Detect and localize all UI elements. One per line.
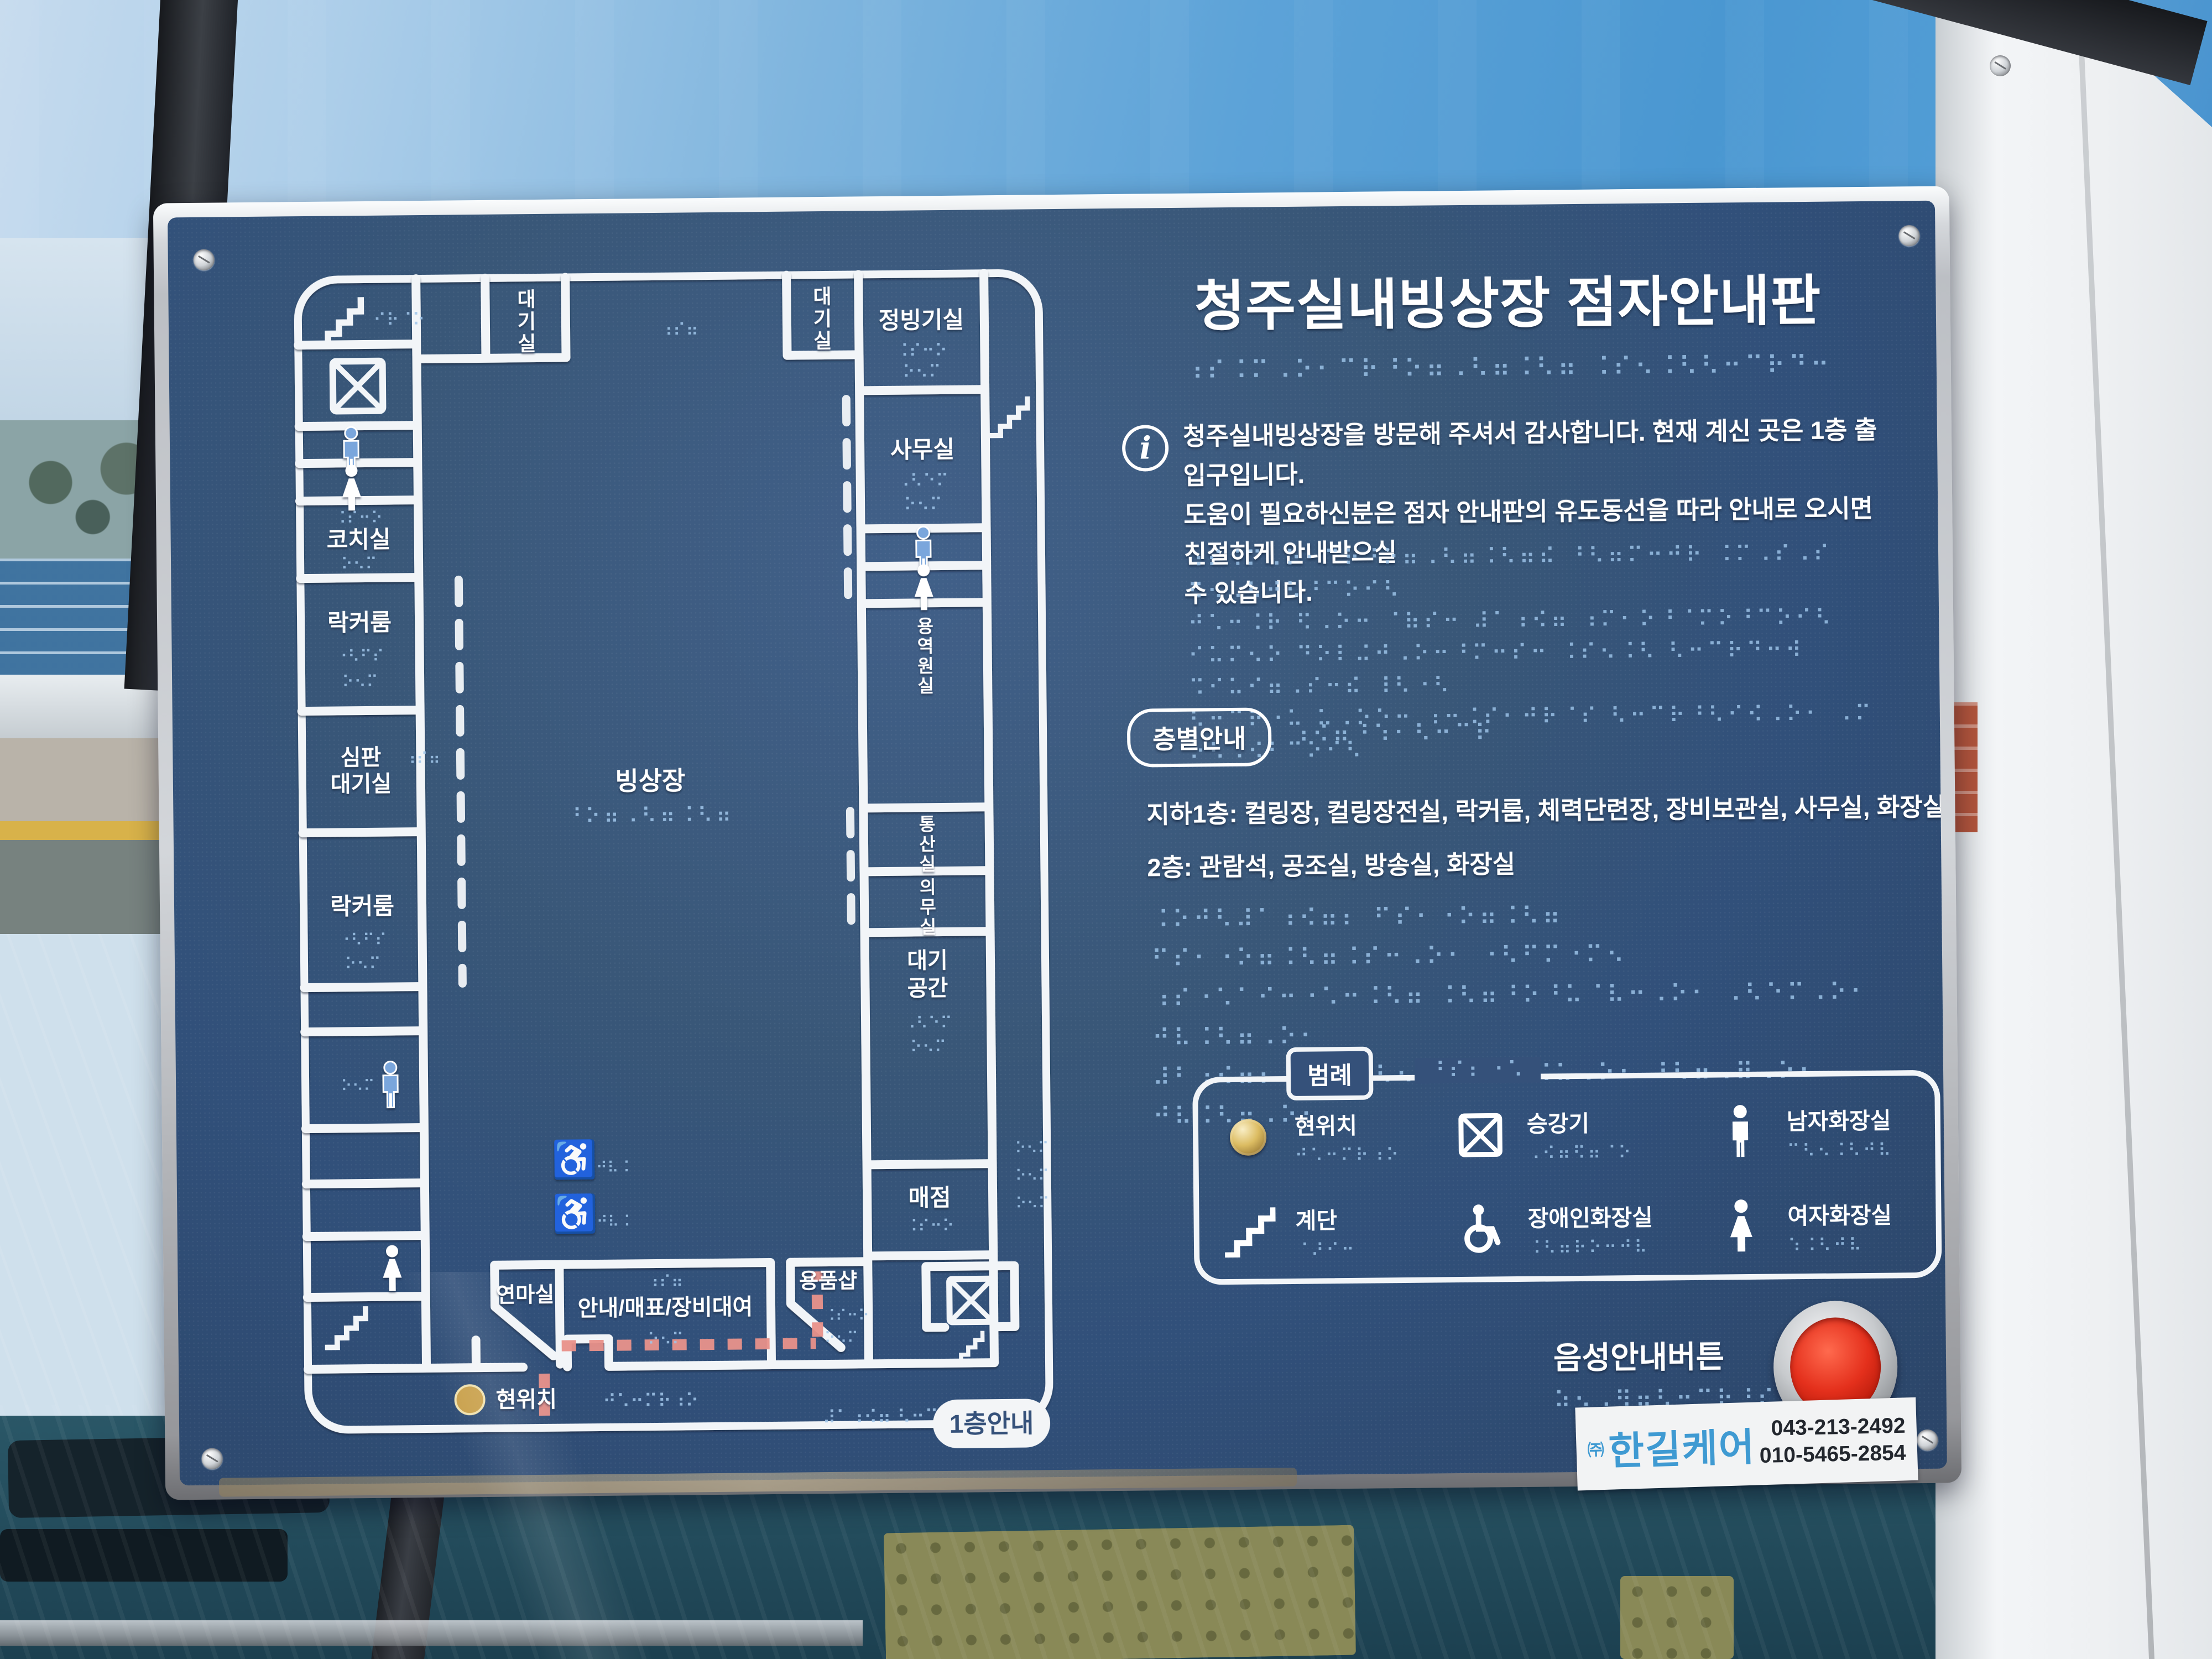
board-panel: ♿ ♿ 대기실 대기실 정빙기실 사무실 코치실 락커룸 심판 [168, 201, 1947, 1486]
svg-text:⠐⠣⠋⠎: ⠐⠣⠋⠎ [338, 931, 387, 951]
room-label: 의무실 [917, 878, 937, 937]
svg-text:⠊⠗⠈⠕: ⠊⠗⠈⠕ [373, 309, 425, 331]
area-label: 공간 [907, 976, 948, 1001]
female-restroom-icon [1710, 1198, 1772, 1256]
door-openings [457, 399, 852, 984]
stairs-icon [1218, 1206, 1280, 1258]
legend-item-stairs: 계단 ⠈⠜⠊⠒ [1218, 1201, 1451, 1261]
female-restroom-icon [383, 1245, 402, 1291]
svg-text:⠚⠧⠨: ⠚⠧⠨ [596, 1212, 630, 1231]
board-screw [1898, 225, 1919, 246]
svg-text:⠚⠡⠒⠍⠗⠰⠕: ⠚⠡⠒⠍⠗⠰⠕ [602, 1390, 699, 1413]
sticker-phone2: 010-5465-2854 [1760, 1440, 1907, 1470]
room-label: 연마실 [496, 1284, 554, 1307]
area-label: 대기 [907, 948, 948, 973]
info-desk-front [598, 1355, 769, 1357]
accessible-restroom-icon: ♿ [552, 1193, 598, 1235]
board-screw [194, 249, 215, 270]
svg-text:⠕⠢⠍: ⠕⠢⠍ [341, 555, 377, 575]
board-title: 청주실내빙상장 점자안내판 [1142, 255, 1873, 342]
room-label: 코치실 [326, 526, 390, 553]
voice-button-label: 음성안내버튼 [1553, 1332, 1725, 1378]
stairs-icon [953, 1333, 983, 1362]
outdoor-dark-road [0, 840, 169, 934]
elevator-icon [1449, 1111, 1512, 1159]
board-screw [201, 1448, 222, 1469]
frame-screw [1990, 55, 2011, 76]
svg-text:⠨⠎⠒⠕: ⠨⠎⠒⠕ [895, 340, 947, 362]
room-label: 대기실 [514, 289, 537, 356]
sticker-company: 한길케어 [1608, 1416, 1756, 1476]
svg-text:⠠⠣⠑⠍: ⠠⠣⠑⠍ [897, 470, 949, 492]
title-braille: ⠰⠎⠨⠍⠠⠕⠂⠉⠗⠘⠕⠶⠠⠣⠶⠨⠣⠶ ⠨⠎⠢⠨⠣⠣⠒⠉⠗⠙⠒ [1144, 349, 1874, 387]
outdoor-yellow-line [0, 821, 169, 840]
svg-text:⠨⠎⠒⠕: ⠨⠎⠒⠕ [334, 509, 383, 529]
room-label: 사무실 [890, 436, 954, 463]
legend-item-male-restroom: 남자화장실 ⠉⠣⠢⠨⠣⠚⠧ [1709, 1101, 1942, 1162]
stairs-icon [991, 399, 1027, 435]
current-location-button [1217, 1119, 1280, 1156]
male-restroom-icon [383, 1061, 398, 1107]
svg-text:⠕⠢⠍: ⠕⠢⠍ [1015, 1166, 1050, 1185]
sticker-phone1: 043-213-2492 [1759, 1413, 1906, 1443]
outdoor-road [0, 738, 169, 821]
room-label: 통산실 [916, 815, 936, 874]
svg-text:⠕⠢⠍: ⠕⠢⠍ [647, 1330, 684, 1350]
room-label: 대기실 [331, 772, 392, 797]
male-restroom-icon [1709, 1103, 1772, 1161]
floor-pill-label: 1층안내 [950, 1408, 1034, 1438]
floor-plan-map: ♿ ♿ 대기실 대기실 정빙기실 사무실 코치실 락커룸 심판 [233, 262, 1074, 1458]
svg-text:⠕⠢⠍: ⠕⠢⠍ [345, 954, 381, 974]
room-label: 매점 [908, 1185, 951, 1211]
svg-text:⠕⠢⠍: ⠕⠢⠍ [1015, 1139, 1049, 1157]
room-label: 대기실 [810, 286, 833, 353]
braille-guide-board: ♿ ♿ 대기실 대기실 정빙기실 사무실 코치실 락커룸 심판 [153, 186, 1961, 1500]
svg-text:⠰⠎⠶: ⠰⠎⠶ [404, 749, 440, 769]
legend-item-accessible-restroom: 장애인화장실 ⠨⠣⠶⠗⠕⠒⠚⠧ [1450, 1198, 1710, 1259]
room-label: 심판 [340, 745, 381, 770]
svg-text:⠕⠢⠍: ⠕⠢⠍ [904, 494, 943, 515]
stairs-icon [327, 1309, 366, 1348]
svg-text:⠕⠢⠍: ⠕⠢⠍ [902, 361, 941, 383]
svg-text:⠚⠧⠨: ⠚⠧⠨ [596, 1158, 630, 1177]
floor-guide-line: 2층: 관람석, 공조실, 방송실, 화장실 [1147, 841, 1883, 884]
legend-grid: 현위치 ⠚⠡⠒⠍⠗⠰⠕ 승강기 ⠠⠪⠶⠫⠶⠈⠕ [1198, 1076, 1936, 1280]
legend-box: 범례 ⠘⠎⠆⠐⠡ 현위치 ⠚⠡⠒⠍⠗⠰⠕ 승강기 ⠠⠪⠶⠫⠶⠈⠕ [1192, 1070, 1942, 1285]
svg-text:⠕⠢⠍: ⠕⠢⠍ [342, 672, 378, 692]
legend-item-current-location: 현위치 ⠚⠡⠒⠍⠗⠰⠕ [1217, 1106, 1450, 1167]
svg-text:⠕⠢⠍: ⠕⠢⠍ [824, 1328, 858, 1347]
current-location-button [455, 1385, 484, 1414]
room-label: 정빙기실 [878, 307, 964, 333]
photo-of-braille-guide-board: ♿ ♿ 대기실 대기실 정빙기실 사무실 코치실 락커룸 심판 [0, 0, 2212, 1659]
accessible-restroom-icon: ♿ [551, 1139, 597, 1181]
sticker-phones: 043-213-2492 010-5465-2854 [1759, 1413, 1906, 1470]
svg-text:⠕⠢⠍: ⠕⠢⠍ [910, 1037, 946, 1057]
sticker-prefix: ㈜ [1587, 1436, 1604, 1461]
room-label: 용역원실 [914, 617, 935, 696]
floor-guide-braille: ⠰⠪⠶⠘⠱⠂⠣⠒⠉⠗ [1292, 719, 1495, 748]
info-line: 청주실내빙상장을 방문해 주셔서 감사합니다. 현재 계신 곳은 1층 출입구입… [1183, 410, 1897, 495]
elevator-icon [333, 355, 993, 1328]
legend-item-female-restroom: 여자화장실 ⠱⠨⠣⠚⠧ [1710, 1196, 1943, 1256]
accessible-restroom-icon [1450, 1203, 1512, 1256]
svg-text:⠠⠣⠑⠍: ⠠⠣⠑⠍ [904, 1014, 952, 1034]
board-screw [1917, 1430, 1938, 1451]
info-icon: i [1122, 425, 1169, 472]
svg-text:⠕⠢⠍: ⠕⠢⠍ [341, 1077, 375, 1095]
outdoor-paving [0, 934, 169, 1421]
room-label: 안내/매표/장비대여 [578, 1295, 753, 1321]
svg-text:⠕⠢⠍: ⠕⠢⠍ [1015, 1194, 1050, 1213]
svg-text:⠰⠎⠶: ⠰⠎⠶ [646, 1272, 683, 1292]
svg-text:⠨⠎⠒⠕: ⠨⠎⠒⠕ [906, 1217, 954, 1237]
legend-item-elevator: 승강기 ⠠⠪⠶⠫⠶⠈⠕ [1449, 1103, 1710, 1165]
room-label: 락커룸 [327, 609, 392, 636]
room-label: 락커룸 [330, 893, 394, 920]
svg-text:⠨⠎⠒⠕: ⠨⠎⠒⠕ [824, 1306, 869, 1325]
floor-guide-line: 지하1층: 컬링장, 컬링장전실, 락커룸, 체력단련장, 장비보관실, 사무실… [1146, 787, 1882, 831]
current-location-label: 현위치 [495, 1387, 557, 1412]
floor-guide-pill: 층별안내 [1127, 707, 1272, 768]
svg-text:⠘⠕⠶⠠⠣⠶⠨⠣⠶: ⠘⠕⠶⠠⠣⠶⠨⠣⠶ [566, 803, 735, 829]
rink-label: 빙상장 [615, 766, 685, 795]
svg-text:⠐⠣⠋⠎: ⠐⠣⠋⠎ [336, 647, 384, 667]
room-label: 용품샵 [799, 1270, 857, 1293]
stairs-icon [317, 300, 362, 345]
maker-sticker: ㈜ 한길케어 043-213-2492 010-5465-2854 [1575, 1397, 1918, 1491]
svg-text:⠰⠎⠶: ⠰⠎⠶ [660, 319, 699, 341]
